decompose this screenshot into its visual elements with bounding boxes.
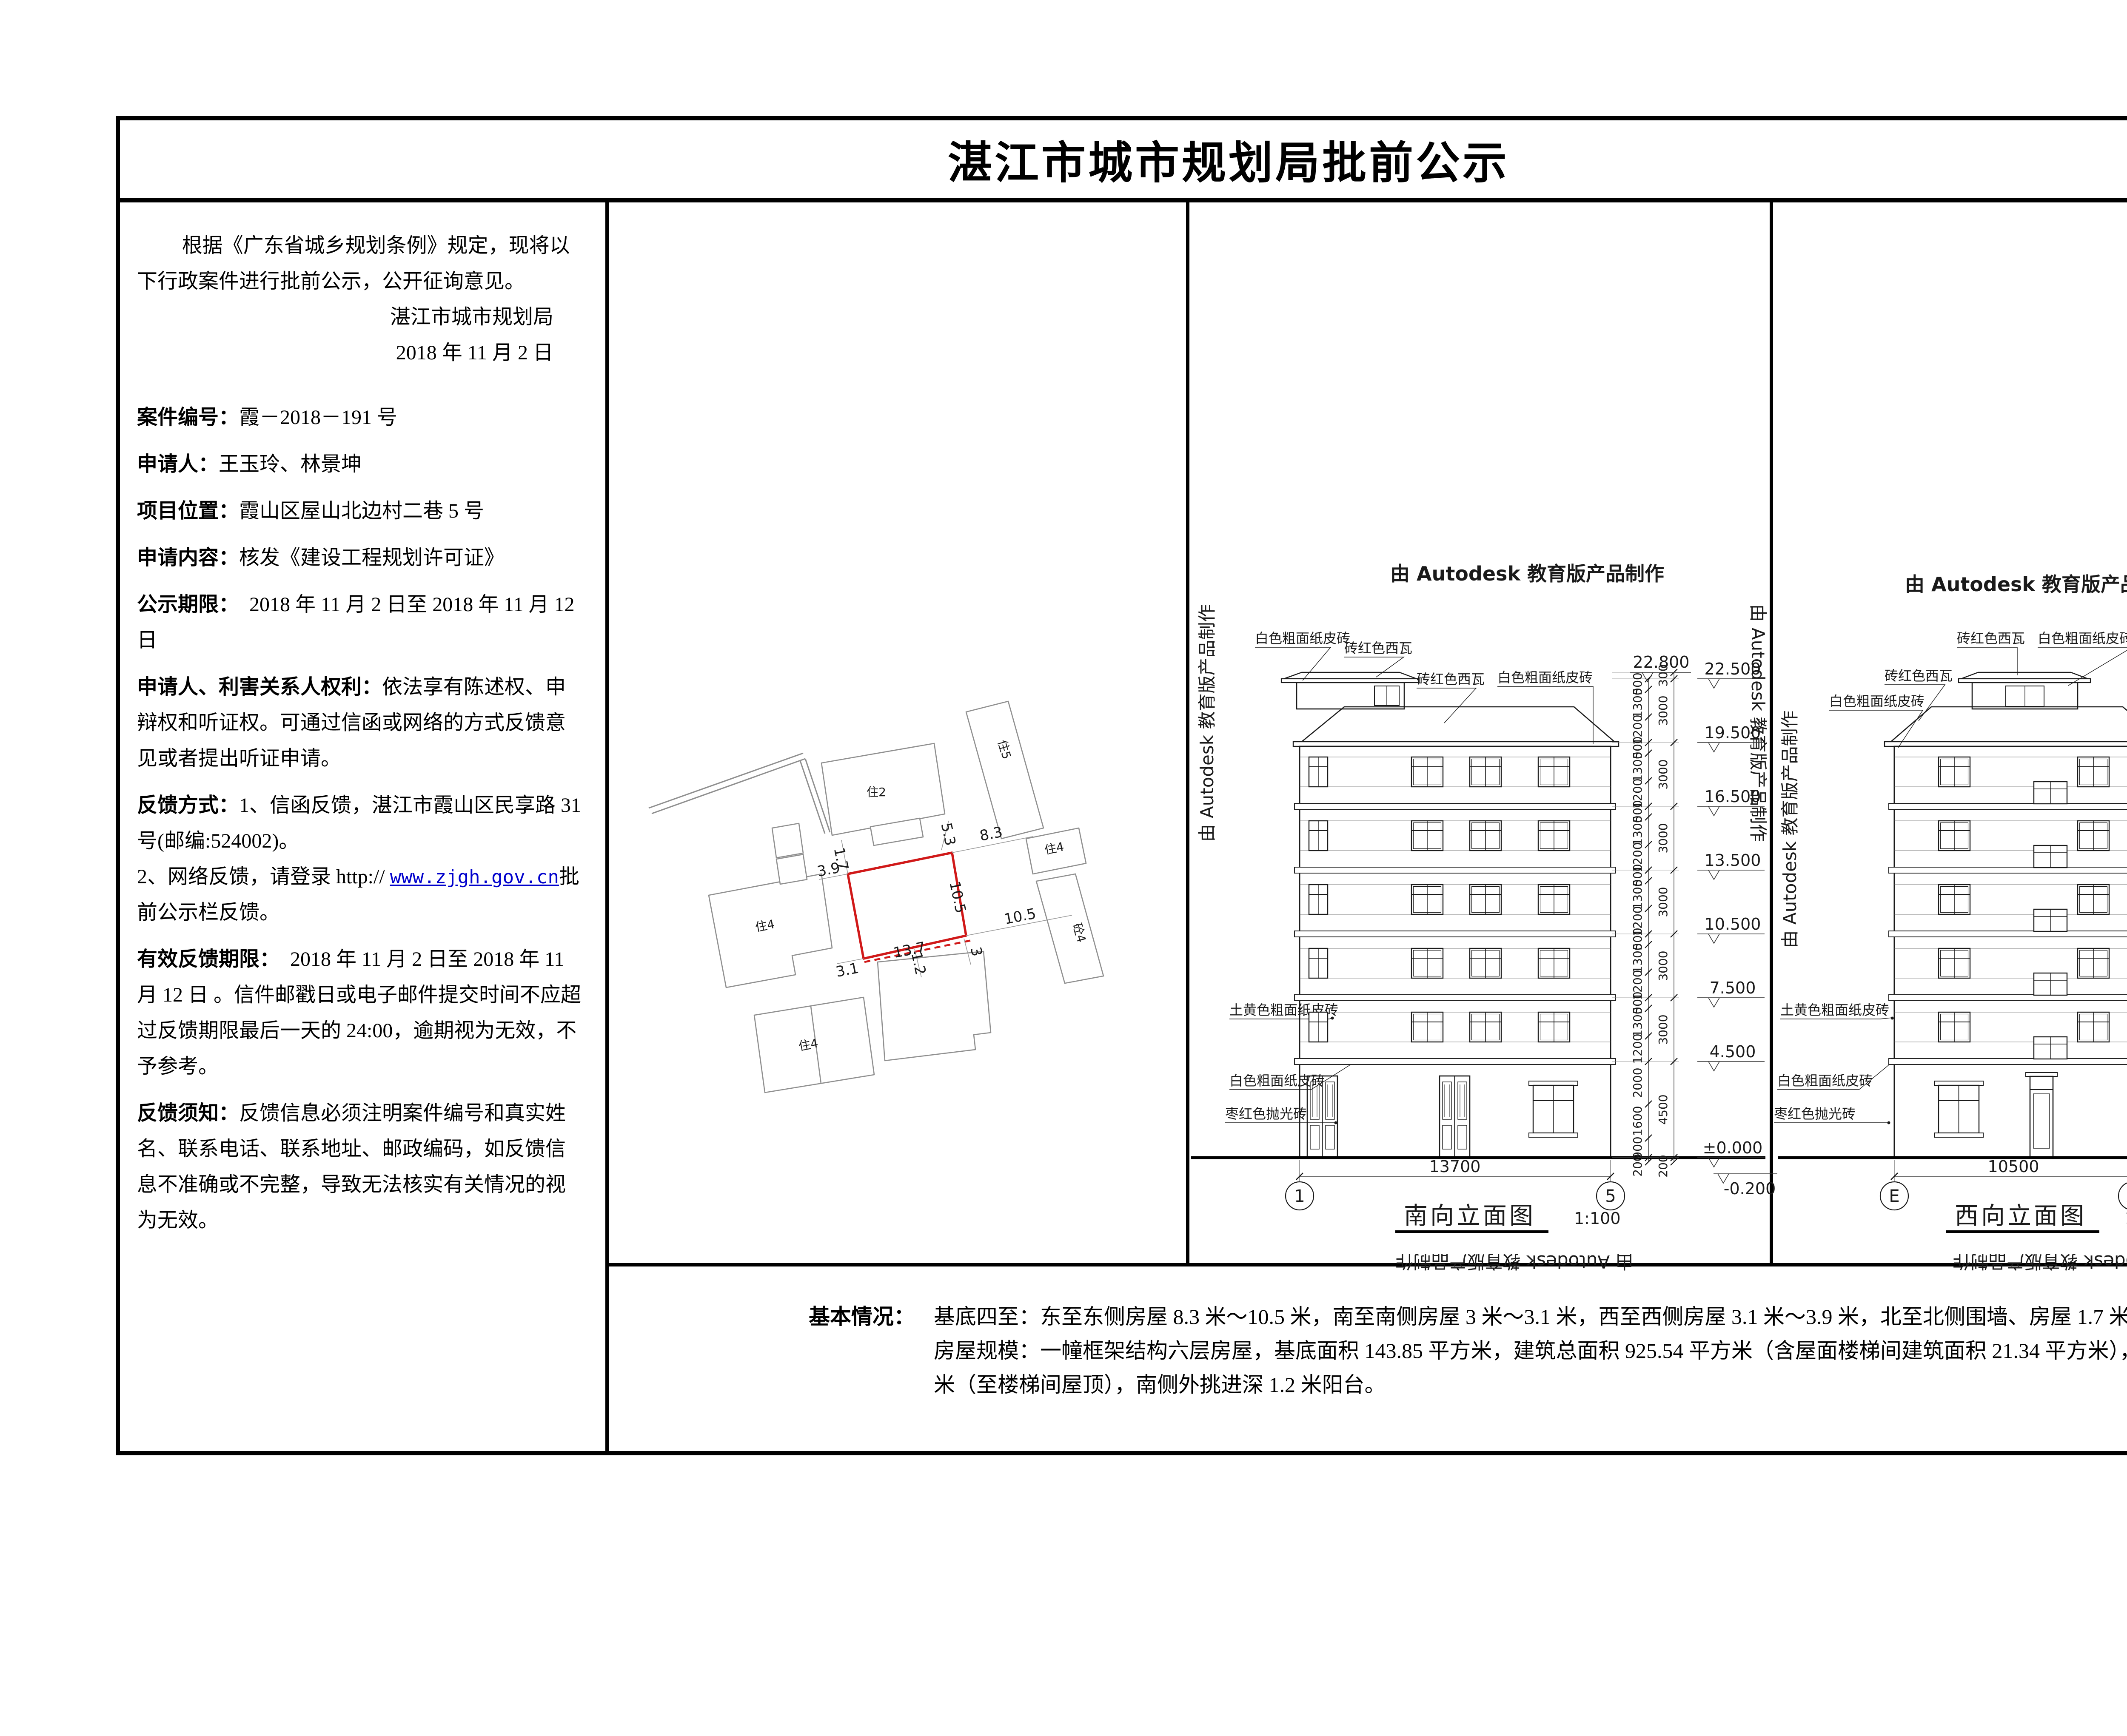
level-label: 16.500: [1705, 787, 1761, 806]
setback-label: 8.3: [978, 823, 1004, 845]
main-roof: [1302, 707, 1614, 742]
setback-label: 3.1: [835, 959, 861, 981]
floor-slab-band: [1294, 1059, 1616, 1064]
autodesk-watermark-top: 由 Autodesk 教育版产品制作: [1390, 562, 1664, 585]
setback-label: 10.5: [1003, 905, 1038, 928]
floor-slab-band: [1889, 803, 2127, 809]
window: [2078, 821, 2109, 851]
dim-label: 1300: [1631, 1007, 1645, 1037]
window: [2078, 948, 2109, 978]
level-marker-triangle: [1708, 934, 1719, 943]
stair-bulkhead-roof: [1284, 672, 1417, 679]
material-label: 砖红色西瓦: [1957, 630, 2025, 646]
floor-slab-band: [1294, 995, 1616, 1001]
width-dim-label: 13700: [1429, 1157, 1481, 1176]
material-label: 白色粗面纸皮砖: [1229, 1073, 1325, 1089]
window: [1538, 757, 1570, 787]
material-label: 砖红色西瓦: [1885, 668, 1953, 684]
dim-label: 1300: [1631, 815, 1645, 845]
dim-label: 3000: [1656, 759, 1670, 789]
window: [1939, 821, 1970, 851]
axis-label: E: [1889, 1187, 1899, 1206]
window: [1309, 1012, 1328, 1042]
material-label: 砖红色西瓦: [1344, 640, 1412, 656]
neighbor-buildings: [709, 701, 1103, 1093]
window: [2034, 845, 2067, 868]
drawing-scale: 1:100: [2125, 1209, 2127, 1228]
material-label: 白色粗面纸皮砖: [1497, 669, 1593, 686]
small-structure: [772, 823, 803, 858]
window: [1411, 885, 1443, 914]
axis-label: 1: [1294, 1187, 1305, 1206]
dim-label: 3000: [1656, 823, 1670, 853]
window: [1309, 757, 1328, 787]
level-label: -0.200: [1724, 1179, 1776, 1198]
level-label: 22.800: [1633, 653, 1690, 672]
window: [1470, 1012, 1501, 1042]
window: [1939, 1012, 1970, 1042]
entrance-door: [1440, 1076, 1470, 1158]
plot-depth-label: 10.5: [946, 880, 969, 915]
level-label: 19.500: [1705, 723, 1761, 742]
small-structure: [776, 854, 807, 884]
building-label: 住2: [867, 785, 886, 799]
material-label: 白色粗面纸皮砖: [1829, 693, 1925, 709]
building-outline: [878, 951, 991, 1061]
dim-label: 1600: [1631, 1106, 1645, 1136]
dim-label: 4500: [1656, 1094, 1670, 1124]
window: [1538, 948, 1570, 978]
autodesk-watermark-bottom: 由 Autodesk 教育版产品制作: [1953, 1251, 2127, 1272]
window: [1470, 757, 1501, 787]
window: [1411, 757, 1443, 787]
site-plan: 13.7 10.5 1.7 5.3 8.3 3.9 3.1 10.5 1.2 3…: [649, 701, 1103, 1093]
main-roof: [1891, 707, 2127, 742]
dim-label: 2000: [1631, 1067, 1645, 1098]
window: [1470, 821, 1501, 851]
dim-label: 3000: [1656, 695, 1670, 726]
dim-label: 1200: [1631, 1033, 1645, 1064]
window: [1309, 821, 1328, 851]
level-marker-triangle: [1708, 743, 1719, 752]
drawing-title: 西向立面图: [1955, 1202, 2087, 1230]
window: [2034, 973, 2067, 995]
bulkhead-eave: [1959, 679, 2090, 683]
roof-eave-band: [1293, 742, 1619, 746]
ground-window: [1529, 1081, 1578, 1137]
setback-label: 5.3: [938, 821, 959, 847]
autodesk-watermark-top: 由 Autodesk 教育版产品制作: [1905, 573, 2127, 596]
bulkhead-eave: [1281, 679, 1419, 683]
material-label: 枣红色抛光砖: [1225, 1106, 1307, 1122]
ground-window: [1934, 1081, 1983, 1137]
autodesk-watermark-bottom: 由 Autodesk 教育版产品制作: [1396, 1251, 1634, 1272]
floor-slab-band: [1889, 867, 2127, 873]
dim-label: 3000: [1656, 1014, 1670, 1044]
building-outline: [966, 701, 1044, 839]
setback-label: 3.9: [816, 859, 842, 880]
window: [1538, 821, 1570, 851]
level-marker-triangle: [1708, 1062, 1719, 1071]
window: [1470, 885, 1501, 914]
dim-label: 1300: [1631, 751, 1645, 782]
roof-eave-band: [1885, 742, 2127, 746]
dim-label: 1300: [1631, 879, 1645, 909]
window: [2078, 1012, 2109, 1042]
window: [1538, 1012, 1570, 1042]
west-elevation: 由 Autodesk 教育版产品制作 由 Autodesk 教育版产品制作 由 …: [1774, 573, 2127, 1272]
street-lines: [649, 753, 830, 834]
dim-label: 3000: [1656, 887, 1670, 917]
notice-page: 湛江市城市规划局批前公示 根据《广东省城乡规划条例》规定，现将以下行政案件进行批…: [0, 0, 2127, 1736]
width-dim-label: 10500: [1988, 1157, 2039, 1176]
dim-label: 3000: [1656, 951, 1670, 981]
dim-label: 1300: [1631, 688, 1645, 718]
material-label: 砖红色西瓦: [1417, 671, 1485, 687]
level-label: 7.500: [1710, 979, 1756, 997]
floor-slab-band: [1889, 1059, 2127, 1064]
window: [2078, 885, 2109, 914]
level-label: 22.500: [1705, 660, 1761, 678]
dim-label: 200: [1656, 1155, 1670, 1177]
window: [1309, 948, 1328, 978]
window: [1939, 885, 1970, 914]
floor-slab-band: [1889, 995, 2127, 1001]
window: [1309, 885, 1328, 914]
window: [2078, 757, 2109, 787]
dim-label: 1300: [1631, 943, 1645, 973]
floor-slab-band: [1294, 803, 1616, 809]
window: [1470, 948, 1501, 978]
level-label: 4.500: [1710, 1042, 1756, 1061]
level-label: ±0.000: [1703, 1138, 1763, 1157]
window: [1411, 821, 1443, 851]
drawings-layer: 13.7 10.5 1.7 5.3 8.3 3.9 3.1 10.5 1.2 3…: [0, 0, 2127, 1736]
stair-bulkhead-roof: [1961, 672, 2088, 679]
drawing-title: 南向立面图: [1404, 1202, 1536, 1230]
material-label: 白色粗面纸皮砖: [1255, 630, 1350, 646]
material-label: 枣红色抛光砖: [1774, 1106, 1856, 1122]
floor-slab-band: [1294, 867, 1616, 873]
autodesk-watermark-left: 由 Autodesk 教育版产品制作: [1197, 604, 1217, 842]
window: [1538, 885, 1570, 914]
dim-label: 200: [1631, 1154, 1645, 1176]
level-marker-triangle: [1708, 870, 1719, 879]
axis-bubble: [2118, 1182, 2127, 1210]
window: [1411, 948, 1443, 978]
window: [1411, 1012, 1443, 1042]
window: [1939, 948, 1970, 978]
level-label: 13.500: [1705, 851, 1761, 870]
level-marker-triangle: [1708, 998, 1719, 1007]
level-marker-triangle: [1708, 806, 1719, 816]
floor-slab-band: [1294, 931, 1616, 937]
autodesk-watermark-left: 由 Autodesk 教育版产品制作: [1779, 711, 1800, 948]
axis-label: 5: [1605, 1187, 1616, 1206]
window: [2034, 1037, 2067, 1059]
material-label: 白色粗面纸皮砖: [2038, 630, 2127, 646]
door-canopy: [2026, 1073, 2057, 1076]
level-marker-triangle: [1708, 679, 1719, 688]
window: [2034, 782, 2067, 804]
material-label: 土黄色粗面纸皮砖: [1780, 1002, 1889, 1018]
material-label: 白色粗面纸皮砖: [1777, 1073, 1873, 1089]
window: [1939, 757, 1970, 787]
building-outline: [1036, 874, 1103, 983]
level-label: 10.500: [1705, 915, 1761, 933]
window: [2034, 909, 2067, 931]
drawing-scale: 1:100: [1574, 1209, 1621, 1228]
floor-slab-band: [1889, 931, 2127, 937]
